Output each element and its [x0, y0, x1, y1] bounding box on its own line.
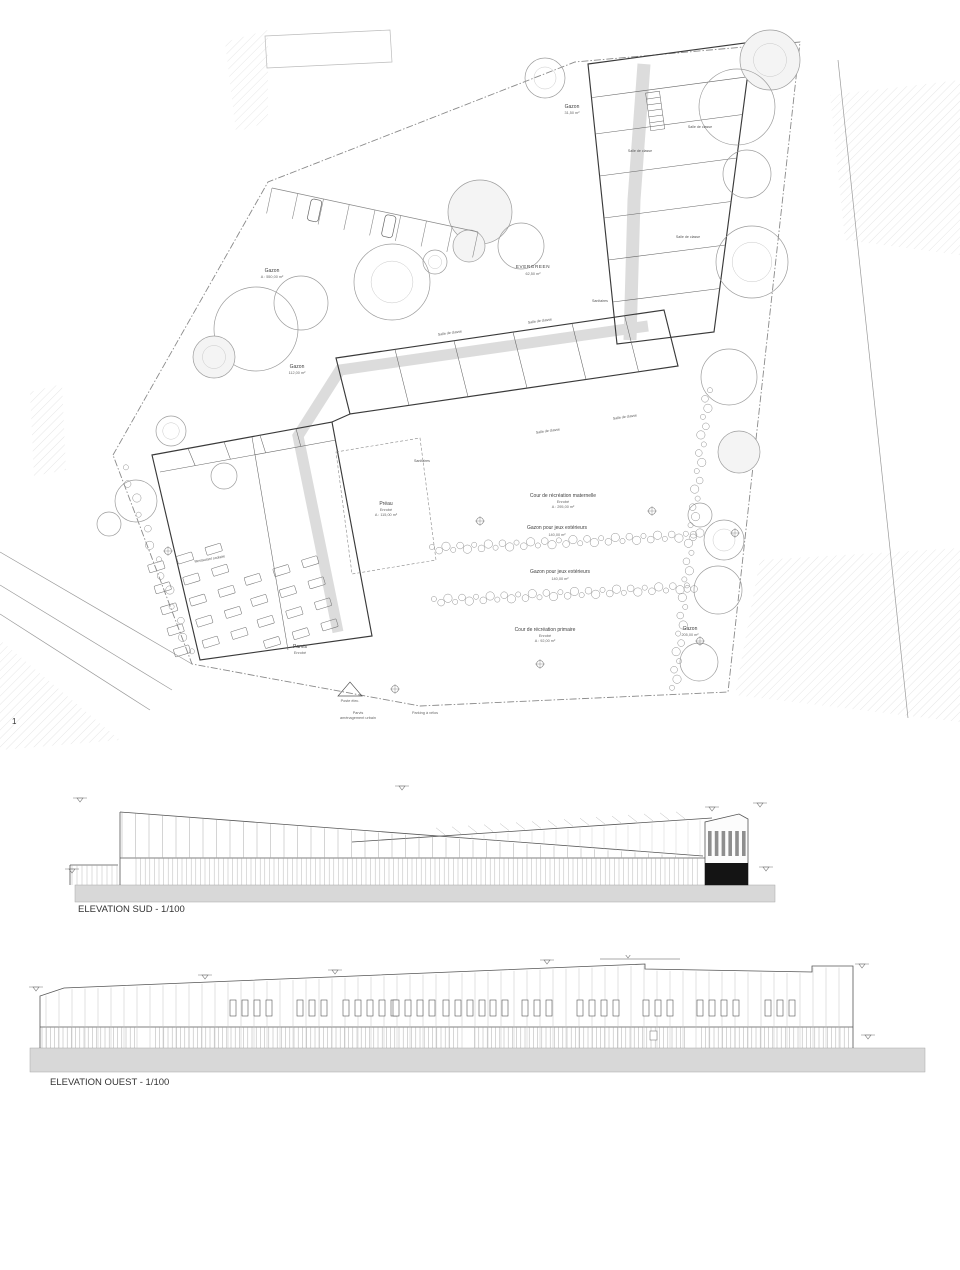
label-velos: Parking à vélos [412, 711, 438, 715]
drawing-sheet: Gazon A : 550,00 m² Gazon 112,00 m² Gazo… [0, 0, 960, 1270]
level-marker [625, 955, 631, 958]
gable-window-bar [742, 831, 746, 856]
level-marker [332, 970, 338, 974]
hedge-shrub [537, 595, 542, 600]
sud-decorations [65, 786, 773, 885]
window-rect [230, 1000, 236, 1016]
hedge-shrub [689, 550, 694, 555]
hedge-shrub [642, 585, 647, 590]
window-rect [467, 1000, 473, 1016]
table-rect [160, 603, 178, 615]
tree-circle [680, 643, 718, 681]
hedge-shrub [653, 531, 661, 539]
label-gazon-ne: Gazon [565, 104, 580, 110]
parking-stall-line [447, 227, 452, 252]
tree-inner-circle [428, 255, 441, 268]
hedge-shrub [465, 597, 473, 605]
hedge-shrub [472, 542, 477, 547]
hedge-shrub [493, 545, 498, 550]
hedge-shrub [501, 592, 508, 599]
level-marker [544, 960, 550, 964]
label-evergreen: EVERGREEN [516, 264, 550, 269]
hedge-shrub [590, 538, 598, 546]
hedge-shrub [669, 685, 674, 690]
table-rect [244, 573, 262, 585]
label-parvis-urbain-2: aménagement urbain [340, 716, 376, 720]
roof-hatch-tick [484, 825, 493, 832]
hedge-shrub [564, 592, 571, 599]
hedge-shrub [690, 485, 698, 493]
roof-hatch-tick [596, 817, 605, 824]
hedge-shrub [520, 543, 527, 550]
hedge-shrub [697, 431, 705, 439]
hedge-shrub [684, 539, 692, 547]
table-rect [189, 594, 207, 606]
window-rect [502, 1000, 508, 1016]
ouest-decorations [29, 955, 875, 1048]
window-rect [765, 1000, 771, 1016]
hedge-shrub [671, 666, 678, 673]
hedge-shrub [473, 594, 478, 599]
label-cour-primaire-area: A : 92,00 m² [535, 639, 556, 643]
window-rect [321, 1000, 327, 1016]
window-rect [429, 1000, 435, 1016]
hedge-shrub [431, 596, 436, 601]
hedge-shrub [683, 558, 690, 565]
tree-circle [701, 349, 757, 405]
window-rect [643, 1000, 649, 1016]
roof-hatch-tick [612, 816, 621, 823]
room-label: Restaurant scolaire [194, 554, 225, 563]
table-rect [231, 627, 249, 639]
small-window-rect [650, 1031, 657, 1040]
table-rect [154, 582, 172, 594]
label-gazon-nw: Gazon [265, 268, 280, 274]
tree-inner-circle [371, 261, 413, 303]
hedge-shrub [676, 586, 684, 594]
tree-circle [718, 431, 760, 473]
hedge-shrub [611, 533, 619, 541]
elevation-sud: ELEVATION SUD - 1/100 [0, 785, 960, 920]
hedge-shrub [535, 543, 540, 548]
hedge-shrub [579, 592, 584, 597]
window-rect [777, 1000, 783, 1016]
tree-circle [97, 512, 121, 536]
hedge-shrub [683, 604, 688, 609]
gable-window-bar [708, 831, 712, 856]
hedge-shrub [649, 588, 656, 595]
gable-window-bar [715, 831, 719, 856]
hedge-shrub [453, 599, 458, 604]
hedge-shrub [459, 594, 466, 601]
table-rect [205, 543, 223, 555]
hedge-shrub [689, 504, 696, 511]
hedge-shrub [669, 583, 676, 590]
hedge-shrub [647, 536, 654, 543]
hedge-shrub [668, 531, 675, 538]
hedge-shrub [678, 640, 685, 647]
elevation-ouest: ELEVATION OUEST - 1/100 [0, 955, 960, 1095]
hedge-shrub [634, 588, 642, 596]
hedge-shrub [505, 543, 513, 551]
window-rect [522, 1000, 528, 1016]
label-cour-primaire: Cour de récréation primaire [515, 627, 576, 633]
hedge-shrub [549, 592, 557, 600]
label-gazon-jeux-2: Gazon pour jeux extérieurs [530, 569, 591, 575]
hedge-shrub [655, 583, 663, 591]
window-rect [721, 1000, 727, 1016]
car-shape [307, 198, 322, 222]
roof-hatch-tick [564, 819, 573, 826]
hedge-shrub [438, 599, 445, 606]
elevation-ouest-title: ELEVATION OUEST - 1/100 [50, 1077, 169, 1088]
site-plan: Gazon A : 550,00 m² Gazon 112,00 m² Gazo… [0, 0, 960, 750]
label-gazon-jeux-2-area: 140,00 m² [551, 577, 569, 581]
table-rect [202, 636, 220, 648]
hedge-shrub [457, 542, 464, 549]
hedge-shrub [548, 541, 556, 549]
window-rect [455, 1000, 461, 1016]
hedge-shrub [157, 573, 164, 580]
hedge-shrub [691, 512, 699, 520]
gable-black-base [705, 863, 748, 885]
window-rect [393, 1000, 399, 1016]
window-rect [667, 1000, 673, 1016]
label-preau-sub: Enrobé [380, 508, 392, 512]
level-marker [859, 964, 865, 968]
hedge-shrub [442, 542, 450, 550]
hedge-shrub [685, 567, 693, 575]
room-label: Salle de classe [528, 317, 552, 324]
label-cour-maternelle-sub: Enrobé [557, 500, 569, 504]
road-hatch-zones [0, 30, 960, 750]
label-preau-area: A : 115,00 m² [375, 513, 398, 517]
hedge-shrub [678, 593, 686, 601]
room-label: Salle de classe [438, 329, 462, 336]
room-label: Sanitaires [592, 299, 608, 303]
roof-hatch-tick [660, 813, 669, 820]
hedge-shrub [516, 592, 521, 597]
level-marker [399, 786, 405, 790]
sud-gable-block [705, 814, 748, 885]
table-rect [176, 552, 194, 564]
label-gazon-se: Gazon [683, 626, 698, 632]
table-rect [257, 615, 275, 627]
room-label: Salle de classe [613, 413, 637, 420]
hedge-shrub [662, 536, 667, 541]
roof-hatch-tick [452, 827, 461, 834]
car-body [307, 198, 322, 222]
roof-hatch-tick [532, 821, 541, 828]
hedge-shrub [444, 594, 452, 602]
table-rect [218, 585, 236, 597]
hedge-shrub [522, 595, 529, 602]
table-rect [286, 606, 304, 618]
label-gazon-w: Gazon [290, 364, 305, 370]
hedge-shrub [429, 544, 434, 549]
parking-stall-line [344, 205, 349, 230]
label-gazon-se-area: 205,00 m² [681, 633, 699, 637]
hedge-shrub [621, 590, 626, 595]
tree-circle [525, 58, 565, 98]
table-rect [292, 628, 310, 640]
roof-hatch-tick [628, 815, 637, 822]
stair-symbol [646, 91, 665, 131]
hedge-shrub [514, 540, 519, 545]
hedge-shrub [606, 590, 613, 597]
hedge-shrub [169, 604, 174, 609]
level-marker [33, 987, 39, 991]
label-parvis: Parvis [293, 644, 307, 650]
hedge-shrub [570, 587, 578, 595]
table-rect [279, 585, 297, 597]
gable-window-bar [735, 831, 739, 856]
elevation-sud-title: ELEVATION SUD - 1/100 [78, 904, 185, 915]
parking-stall-line [421, 221, 426, 246]
hedge-shrub [695, 450, 702, 457]
hedge-shrub [684, 585, 691, 592]
gable-window-bar [722, 831, 726, 856]
parking-stall-line [267, 188, 272, 213]
label-evergreen-area: 62,50 m² [526, 272, 542, 276]
hedge-shrub [478, 545, 485, 552]
window-rect [254, 1000, 260, 1016]
hedge-shrub [585, 587, 592, 594]
hedge-shrub [543, 590, 550, 597]
hedge-shrub [563, 541, 570, 548]
roof-hatch-tick [644, 814, 653, 821]
tree-circle [498, 223, 544, 269]
hedge-shrub [682, 577, 687, 582]
hedge-shrub [528, 590, 536, 598]
label-gazon-ne-area: 31,50 m² [565, 111, 581, 115]
hedge-shrub [600, 587, 605, 592]
parking-stall-line [292, 194, 297, 219]
tree-inner-circle [732, 242, 772, 282]
sud-outline [70, 812, 712, 885]
room-label: Salle de classe [676, 235, 700, 239]
window-rect [601, 1000, 607, 1016]
hedge-shrub [123, 465, 128, 470]
ground-strip [30, 1048, 925, 1072]
hedge-shrub [696, 477, 703, 484]
roof-hatch-tick [580, 818, 589, 825]
window-rect [266, 1000, 272, 1016]
poste-elec-symbol [338, 682, 362, 696]
label-cour-primaire-sub: Enrobé [539, 634, 551, 638]
table-rect [183, 573, 201, 585]
label-gazon-nw-area: A : 550,00 m² [261, 275, 284, 279]
hedge-shrub [698, 458, 706, 466]
tree-circle [723, 150, 771, 198]
hedge-shrub [663, 588, 668, 593]
label-poste-elec: Poste élec. [341, 699, 360, 703]
tree-circle [453, 230, 485, 262]
window-rect [355, 1000, 361, 1016]
window-rect [297, 1000, 303, 1016]
hedge-shrub [702, 395, 709, 402]
window-rect [709, 1000, 715, 1016]
hedge-shrub [702, 423, 709, 430]
interior-partitions [160, 77, 747, 650]
room-label: Sanitaires [414, 459, 430, 463]
hedge-shrub [592, 590, 600, 598]
level-marker [865, 1035, 871, 1039]
tree-circle [156, 416, 186, 446]
tree-inner-circle [534, 67, 556, 89]
hedge-shrub [676, 659, 681, 664]
tree-inner-circle [163, 423, 180, 440]
hedge-shrub [675, 534, 683, 542]
hedge-shrub [605, 538, 612, 545]
hedge-shrub [612, 585, 620, 593]
hedge-shrub [641, 533, 646, 538]
tree-circle [354, 244, 430, 320]
label-gazon-w-area: 112,00 m² [289, 371, 307, 375]
hedge-shrub [584, 535, 591, 542]
table-rect [224, 606, 242, 618]
hedge-shrub [133, 494, 141, 502]
roof-hatch-tick [516, 822, 525, 829]
hedge-shrub [136, 512, 141, 517]
table-rect [167, 624, 185, 636]
tree-circle [423, 250, 447, 274]
window-rect [479, 1000, 485, 1016]
table-rect [148, 561, 166, 573]
hedge-shrub [480, 597, 487, 604]
hedge-shrub [463, 545, 471, 553]
hedge-shrub [695, 496, 700, 501]
car-body [381, 214, 396, 238]
roof-hatch-tick [436, 828, 445, 835]
table-rect [263, 636, 281, 648]
window-rect [343, 1000, 349, 1016]
room-label: Salle de classe [536, 427, 560, 434]
level-marker [77, 798, 83, 802]
table-rect [250, 594, 268, 606]
label-gazon-jeux-1: Gazon pour jeux extérieurs [527, 525, 588, 531]
window-rect [697, 1000, 703, 1016]
ground-strip [75, 885, 775, 902]
table-rect [173, 645, 191, 657]
hedge-shrub [558, 590, 563, 595]
label-gazon-jeux-1-area: 140,00 m² [548, 533, 566, 537]
plan-decorations [97, 30, 800, 694]
hedge-shrub [626, 533, 633, 540]
hedge-shrub [578, 541, 583, 546]
hedge-shrub [526, 538, 534, 546]
tree-circle [193, 336, 235, 378]
neighbor-building [265, 30, 392, 68]
label-parvis-urbain: Parvis [353, 711, 364, 715]
hedge-shrub [556, 538, 561, 543]
hedge-shrub [672, 647, 680, 655]
window-rect [417, 1000, 423, 1016]
hedge-shrub [599, 536, 604, 541]
hedge-shrub [673, 675, 681, 683]
window-rect [379, 1000, 385, 1016]
tree-circle [740, 30, 800, 90]
window-rect [546, 1000, 552, 1016]
table-rect [301, 556, 319, 568]
window-rect [655, 1000, 661, 1016]
hedge-shrub [707, 388, 712, 393]
hedge-shrub [683, 531, 688, 536]
hedge-shrub [486, 592, 494, 600]
hedge-shrub [688, 523, 693, 528]
window-rect [613, 1000, 619, 1016]
hedge-shrub [694, 468, 699, 473]
hedge-shrub [569, 535, 577, 543]
car-shape [381, 214, 396, 238]
gable-window-bar [728, 831, 732, 856]
hedge-shrub [495, 597, 500, 602]
table-rect [195, 615, 213, 627]
window-rect [242, 1000, 248, 1016]
hedge-shrub [700, 414, 705, 419]
level-marker [757, 803, 763, 807]
roof-hatch-tick [548, 820, 557, 827]
label-preau: Préau [379, 501, 393, 507]
hedge-shrub [620, 538, 625, 543]
sheet-number: 1 [12, 717, 17, 726]
window-rect [577, 1000, 583, 1016]
hedge-shrub [701, 442, 706, 447]
hedge-shrub [507, 595, 515, 603]
level-marker [763, 867, 769, 871]
tree-circle [694, 566, 742, 614]
label-cour-maternelle-area: A : 295,00 m² [552, 505, 575, 509]
window-rect [405, 1000, 411, 1016]
window-rect [367, 1000, 373, 1016]
roof-hatch-tick [500, 824, 509, 831]
level-marker [202, 975, 208, 979]
hedge-shrub [451, 547, 456, 552]
parking-stall-line [370, 210, 375, 235]
roof-hatch-tick [468, 826, 477, 833]
hedge-shrub [627, 585, 634, 592]
window-rect [490, 1000, 496, 1016]
window-rect [789, 1000, 795, 1016]
hedge-shrub [144, 525, 151, 532]
label-cour-maternelle: Cour de récréation maternelle [530, 493, 596, 499]
hedge-shrub [484, 540, 492, 548]
tree-circle [211, 463, 237, 489]
level-marker [709, 807, 715, 811]
window-rect [309, 1000, 315, 1016]
label-parvis-sub: Enrobé [294, 651, 306, 655]
window-rect [443, 1000, 449, 1016]
hedge-shrub [677, 612, 684, 619]
parking-stall-line [318, 199, 323, 224]
window-rect [534, 1000, 540, 1016]
roof-hatch-tick [676, 812, 685, 819]
hedge-shrub [632, 536, 640, 544]
room-label: Salle de classe [628, 149, 652, 153]
tree-circle [704, 520, 744, 560]
hedge-shrub [696, 529, 704, 537]
hedge-shrub [436, 547, 443, 554]
window-rect [733, 1000, 739, 1016]
hedge-shrub [177, 617, 184, 624]
hedge-shrub [541, 538, 548, 545]
hedge-shrub [704, 404, 712, 412]
hedge-shrub [499, 540, 506, 547]
table-rect [211, 564, 229, 576]
window-rect [589, 1000, 595, 1016]
hedge-shrub [676, 631, 681, 636]
room-label: Salle de classe [688, 125, 712, 129]
